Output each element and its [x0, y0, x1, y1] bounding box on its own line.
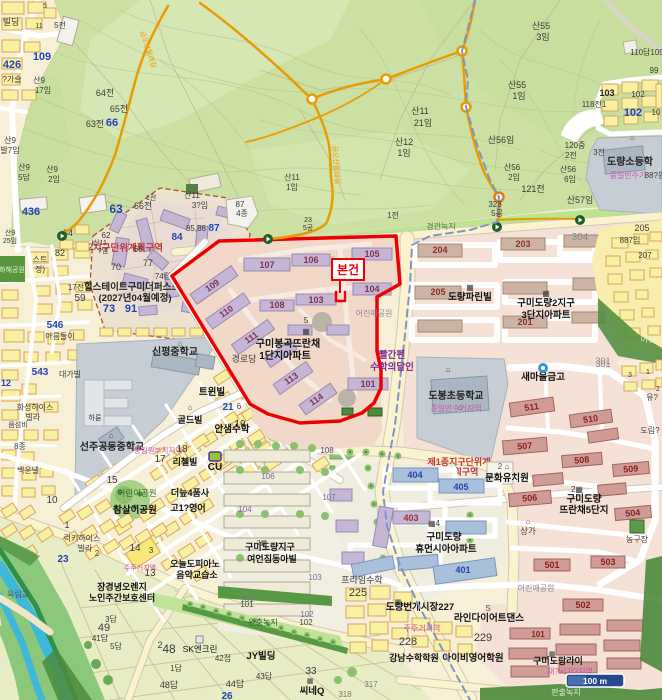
svg-text:1단지아파트: 1단지아파트	[259, 349, 311, 362]
svg-text:5: 5	[43, 3, 47, 10]
svg-text:?임: ?임	[98, 247, 108, 255]
svg-text:럭키하이스: 럭키하이스	[64, 533, 101, 543]
svg-text:19: 19	[234, 419, 246, 430]
svg-text:102: 102	[624, 107, 642, 119]
svg-text:88?원: 88?원	[645, 171, 662, 180]
svg-text:빨간펜: 빨간펜	[379, 349, 405, 361]
svg-text:101: 101	[531, 630, 545, 639]
svg-text:⌂: ⌂	[505, 462, 510, 471]
svg-text:508: 508	[574, 454, 590, 465]
svg-text:6: 6	[237, 402, 242, 411]
svg-text:103: 103	[599, 88, 614, 98]
svg-text:110답109: 110답109	[630, 47, 662, 57]
svg-text:▦: ▦	[542, 289, 550, 298]
svg-text:64전: 64전	[96, 88, 114, 98]
svg-text:63: 63	[109, 202, 123, 216]
svg-text:304: 304	[572, 232, 589, 243]
svg-text:3: 3	[149, 546, 154, 555]
svg-text:산57임: 산57임	[567, 194, 594, 205]
svg-text:도량파린빌: 도량파린빌	[448, 291, 492, 303]
svg-text:발7임: 발7임	[0, 145, 19, 155]
svg-text:백운넬: 백운넬	[17, 465, 39, 475]
svg-text:2: 2	[498, 462, 503, 471]
svg-text:빌딩: 빌딩	[3, 17, 20, 27]
svg-text:1전: 1전	[387, 210, 399, 220]
svg-text:107: 107	[259, 260, 274, 270]
svg-text:17전: 17전	[68, 282, 84, 292]
svg-text:228: 228	[399, 636, 417, 648]
svg-text:23: 23	[304, 217, 312, 224]
svg-text:68: 68	[133, 244, 143, 254]
svg-text:3: 3	[628, 372, 632, 379]
svg-text:118전1: 118전1	[582, 99, 607, 109]
svg-text:405: 405	[453, 482, 468, 492]
svg-text:유?: 유?	[646, 393, 658, 402]
svg-text:102: 102	[299, 618, 313, 627]
svg-text:대가빌: 대가빌	[59, 369, 81, 379]
svg-text:산56임: 산56임	[488, 134, 515, 145]
svg-text:2입: 2입	[508, 173, 520, 182]
svg-text:204: 204	[432, 245, 447, 255]
svg-text:403: 403	[403, 513, 418, 523]
svg-text:산55: 산55	[508, 80, 526, 90]
svg-text:1임: 1임	[512, 90, 525, 101]
svg-text:2▦: 2▦	[257, 540, 268, 547]
svg-text:⌂: ⌂	[446, 365, 451, 374]
svg-text:1임: 1임	[397, 147, 410, 158]
svg-text:104: 104	[364, 284, 379, 294]
svg-text:82: 82	[55, 248, 65, 258]
svg-text:87: 87	[236, 200, 245, 209]
svg-text:104: 104	[238, 505, 252, 514]
svg-text:더늪4품사: 더늪4품사	[171, 487, 210, 498]
svg-text:산9: 산9	[5, 228, 15, 237]
svg-text:318: 318	[338, 690, 352, 699]
svg-text:2임: 2임	[48, 175, 60, 184]
svg-text:510: 510	[582, 413, 598, 425]
svg-text:225: 225	[349, 587, 367, 599]
svg-text:라인다이어트댄스: 라인다이어트댄스	[454, 612, 524, 624]
svg-text:229: 229	[474, 632, 492, 644]
svg-text:?가슬: ?가슬	[2, 74, 21, 84]
svg-text:고1?영어: 고1?영어	[170, 502, 205, 513]
svg-text:⌂: ⌂	[188, 403, 193, 412]
svg-text:509: 509	[623, 463, 639, 474]
svg-text:스트: 스트	[33, 255, 48, 264]
svg-text:84: 84	[171, 232, 183, 243]
svg-text:506: 506	[522, 492, 538, 503]
svg-text:아이비영어학원: 아이비영어학원	[442, 652, 503, 664]
svg-text:5전: 5전	[54, 20, 66, 30]
svg-text:107: 107	[322, 493, 336, 502]
svg-text:본건: 본건	[337, 262, 359, 277]
svg-text:62: 62	[102, 231, 111, 240]
svg-text:503: 503	[600, 557, 615, 567]
svg-text:구미도량지구: 구미도량지구	[245, 541, 295, 552]
svg-text:구미도량2지구: 구미도량2지구	[517, 297, 575, 309]
svg-text:44답: 44답	[226, 678, 244, 689]
svg-text:4종: 4종	[236, 209, 248, 218]
svg-text:2전: 2전	[565, 150, 577, 160]
svg-text:108: 108	[269, 300, 284, 310]
svg-text:신평중학교: 신평중학교	[152, 345, 198, 358]
svg-text:노인주간보호센터: 노인주간보호센터	[89, 592, 155, 603]
svg-text:상가: 상가	[520, 526, 536, 536]
svg-text:401: 401	[455, 565, 470, 575]
svg-text:음악교습소: 음악교습소	[176, 569, 218, 580]
svg-text:산9: 산9	[18, 162, 30, 172]
svg-text:산9: 산9	[4, 135, 16, 145]
svg-text:산12: 산12	[395, 137, 413, 147]
svg-text:21: 21	[222, 402, 234, 413]
svg-text:102: 102	[631, 90, 645, 99]
svg-text:43답: 43답	[256, 671, 273, 681]
svg-text:70: 70	[111, 262, 121, 272]
svg-text:404: 404	[407, 470, 422, 480]
svg-text:507: 507	[517, 440, 533, 451]
svg-text:도량소등학: 도량소등학	[607, 155, 654, 168]
svg-text:중일반수기: 중일반수기	[610, 171, 647, 180]
svg-text:주주거지역: 주주거지역	[124, 563, 156, 572]
svg-text:오늘도피아노: 오늘도피아노	[170, 558, 220, 569]
svg-text:빌라: 빌라	[78, 543, 93, 553]
svg-text:5공: 5공	[303, 224, 314, 232]
svg-text:어린애공원: 어린애공원	[356, 308, 393, 318]
svg-text:강남수학학원: 강남수학학원	[389, 652, 439, 663]
svg-text:25임: 25임	[3, 237, 17, 245]
svg-text:436: 436	[22, 206, 40, 218]
svg-text:2: 2	[656, 386, 660, 393]
svg-text:5: 5	[304, 316, 309, 325]
svg-text:구미도량: 구미도량	[567, 493, 602, 505]
svg-text:1: 1	[64, 520, 69, 530]
svg-text:205: 205	[430, 287, 445, 297]
svg-text:3?임: 3?임	[192, 201, 208, 210]
svg-text:▦: ▦	[302, 327, 310, 336]
svg-text:207: 207	[638, 251, 652, 260]
svg-text:아름들이: 아름들이	[45, 331, 74, 341]
svg-text:48답: 48답	[160, 679, 178, 690]
svg-text:3단지아파트: 3단지아파트	[522, 309, 571, 321]
svg-text:15: 15	[106, 475, 118, 486]
svg-text:육림교: 육림교	[7, 589, 29, 599]
svg-text:42접: 42접	[215, 653, 231, 663]
svg-text:경관녹지: 경관녹지	[426, 221, 455, 231]
svg-text:하륜: 하륜	[89, 413, 102, 422]
svg-text:여언짐동아빌: 여언짐동아빌	[247, 553, 297, 564]
svg-text:▦: ▦	[307, 678, 314, 685]
svg-text:산56: 산56	[560, 164, 577, 174]
svg-text:씨네Q: 씨네Q	[300, 685, 325, 697]
svg-text:41답: 41답	[92, 633, 109, 643]
svg-text:어린애공원: 어린애공원	[518, 583, 555, 593]
svg-text:완충녹지: 완충녹지	[248, 618, 277, 627]
svg-text:장경녕오렌지: 장경녕오렌지	[97, 581, 147, 592]
svg-text:2▦: 2▦	[571, 485, 583, 494]
svg-text:66: 66	[106, 117, 118, 129]
svg-text:어린: 어린	[641, 334, 656, 344]
svg-text:화해공원: 화해공원	[0, 265, 25, 274]
svg-text:99: 99	[650, 66, 659, 75]
svg-text:구미도량: 구미도량	[427, 531, 462, 543]
svg-text:21임: 21임	[414, 117, 432, 128]
svg-text:구미도랑라이: 구미도랑라이	[533, 655, 583, 666]
svg-text:산55: 산55	[532, 21, 550, 31]
svg-text:산11: 산11	[411, 106, 429, 116]
svg-text:산11: 산11	[184, 190, 200, 200]
svg-text:203: 203	[515, 239, 530, 249]
svg-text:17임: 17임	[35, 86, 51, 95]
svg-text:SK엔크린: SK엔크린	[183, 644, 218, 654]
svg-text:도림?: 도림?	[640, 425, 660, 435]
svg-text:1전: 1전	[146, 193, 156, 202]
svg-text:1: 1	[646, 369, 650, 376]
svg-text:5담: 5담	[18, 172, 30, 182]
svg-text:판출녹지: 판출녹지	[551, 687, 580, 697]
svg-text:103: 103	[308, 295, 323, 305]
svg-text:23: 23	[57, 554, 69, 565]
svg-text:JY빌딩: JY빌딩	[246, 650, 275, 662]
svg-text:5답: 5답	[110, 641, 122, 651]
svg-text:66전: 66전	[134, 201, 152, 211]
svg-text:33: 33	[305, 666, 317, 677]
svg-text:6임: 6임	[564, 175, 576, 184]
svg-text:수학의달인: 수학의달인	[370, 361, 414, 373]
svg-text:농구장: 농구장	[626, 534, 649, 544]
svg-text:17: 17	[154, 454, 166, 465]
svg-text:14: 14	[129, 543, 141, 554]
svg-text:426: 426	[3, 59, 21, 71]
svg-text:화성하이스: 화성하이스	[17, 402, 54, 412]
svg-text:101: 101	[360, 379, 375, 389]
svg-text:⌂: ⌂	[458, 403, 463, 412]
svg-text:프라임수학: 프라임수학	[341, 574, 382, 585]
svg-text:▦4: ▦4	[428, 519, 441, 528]
svg-text:85,86: 85,86	[186, 224, 207, 233]
svg-text:121전: 121전	[521, 184, 544, 194]
svg-text:정): 정)	[35, 264, 45, 274]
svg-text:리첼빌: 리첼빌	[173, 456, 198, 467]
svg-text:문화유치원: 문화유치원	[485, 472, 529, 484]
svg-text:산11: 산11	[284, 172, 300, 182]
svg-text:59: 59	[74, 293, 86, 304]
svg-text:뜨란채5단지: 뜨란채5단지	[560, 504, 609, 516]
svg-text:5공: 5공	[491, 209, 503, 218]
svg-text:3전: 3전	[593, 147, 605, 157]
svg-text:2: 2	[95, 549, 100, 558]
svg-text:구미봉곡뜨란채: 구미봉곡뜨란채	[256, 337, 320, 350]
svg-text:산11: 산11	[93, 238, 107, 247]
svg-text:301: 301	[595, 356, 610, 366]
svg-text:경로당: 경로당	[232, 353, 257, 364]
svg-text:10: 10	[652, 108, 661, 117]
svg-text:504: 504	[625, 507, 641, 518]
svg-text:빌라: 빌라	[26, 412, 41, 422]
svg-text:주주거지역: 주주거지역	[404, 623, 441, 633]
svg-text:77: 77	[143, 258, 153, 268]
svg-text:106: 106	[261, 472, 275, 481]
svg-text:휴먼시아아파트: 휴먼시아아파트	[415, 543, 476, 555]
svg-text:3임: 3임	[536, 31, 549, 42]
svg-text:502: 502	[575, 600, 590, 610]
svg-text:511: 511	[524, 401, 540, 413]
svg-text:18: 18	[176, 444, 188, 455]
svg-text:91: 91	[125, 303, 137, 315]
svg-text:▦: ▦	[466, 283, 474, 292]
svg-text:1임: 1임	[286, 183, 298, 192]
svg-text:100 m: 100 m	[583, 676, 608, 686]
svg-text:트윈빌: 트윈빌	[199, 386, 225, 398]
svg-text:산56: 산56	[504, 162, 521, 172]
svg-text:101: 101	[240, 600, 254, 609]
svg-text:2: 2	[157, 640, 162, 650]
svg-text:887임: 887임	[620, 236, 641, 245]
svg-text:골드빌: 골드빌	[178, 414, 203, 425]
svg-text:73: 73	[103, 303, 115, 315]
svg-text:87: 87	[208, 223, 220, 234]
svg-text:S: S	[485, 604, 490, 613]
svg-text:546: 546	[47, 320, 64, 331]
svg-text:힐스테이트구미더퍼스트: 힐스테이트구미더퍼스트	[84, 281, 180, 293]
svg-text:3답: 3답	[105, 614, 117, 624]
svg-text:328: 328	[488, 200, 502, 209]
svg-text:어린이공원: 어린이공원	[117, 488, 156, 498]
svg-text:103: 103	[308, 573, 322, 582]
svg-text:10: 10	[46, 495, 58, 506]
svg-text:109: 109	[33, 51, 51, 63]
svg-text:63전: 63전	[86, 119, 104, 129]
svg-text:CU: CU	[208, 462, 222, 473]
svg-text:12: 12	[1, 378, 11, 388]
svg-text:205: 205	[634, 223, 649, 233]
svg-text:26: 26	[221, 691, 233, 700]
svg-text:산9: 산9	[33, 75, 45, 85]
svg-text:106: 106	[303, 255, 318, 265]
svg-text:1답: 1답	[170, 663, 182, 673]
svg-text:317: 317	[364, 680, 378, 689]
svg-text:501: 501	[544, 560, 559, 570]
svg-text:참살이공원: 참살이공원	[113, 504, 157, 516]
svg-text:65전: 65전	[110, 104, 128, 114]
svg-text:⌂: ⌂	[526, 517, 531, 526]
svg-text:음섬비: 음섬비	[8, 420, 27, 429]
svg-text:120중: 120중	[565, 141, 586, 150]
svg-text:종일반수거지역: 종일반수거지역	[430, 403, 482, 413]
svg-text:제1종지구단위계: 제1종지구단위계	[428, 456, 491, 467]
svg-text:48: 48	[162, 642, 176, 656]
svg-text:⌂: ⌂	[109, 431, 114, 440]
svg-text:543: 543	[32, 367, 49, 378]
svg-text:8종: 8종	[14, 442, 26, 451]
svg-text:11: 11	[35, 23, 42, 30]
svg-text:108: 108	[320, 446, 334, 455]
svg-text:도봉초등학교: 도봉초등학교	[428, 389, 483, 402]
svg-text:105: 105	[364, 249, 379, 259]
svg-text:산9: 산9	[46, 164, 58, 174]
